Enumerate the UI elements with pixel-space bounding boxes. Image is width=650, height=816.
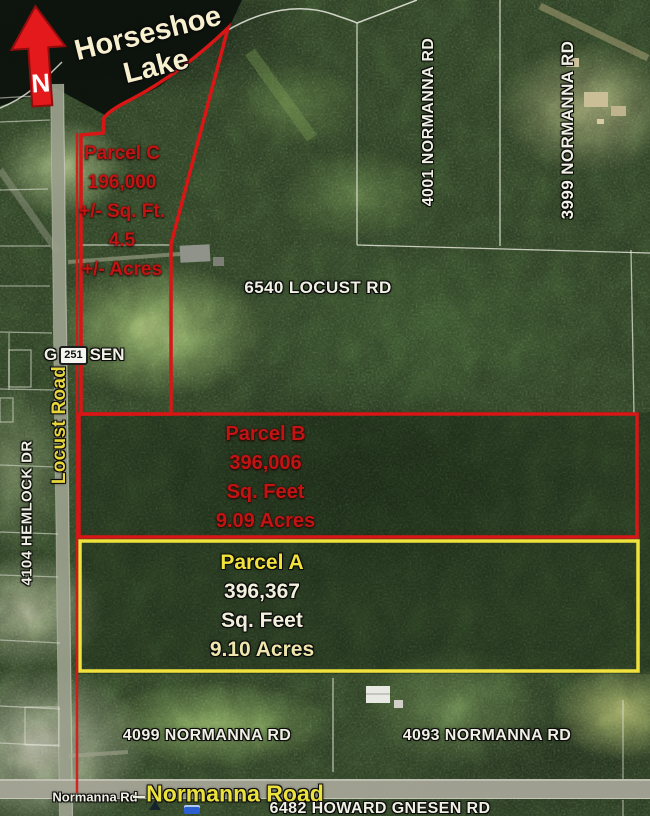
- addr-4099-normanna: 4099 NORMANNA RD: [123, 727, 292, 745]
- parcel-c-title: Parcel C: [58, 139, 186, 168]
- aerial-parcel-map: N Horseshoe Lake Parcel C 196,000 +/- Sq…: [0, 0, 650, 816]
- parcel-a-area: 396,367: [152, 577, 372, 606]
- parcel-b-area-unit: Sq. Feet: [158, 478, 373, 507]
- lake-label: Horseshoe Lake: [47, 0, 258, 107]
- parcel-b-title: Parcel B: [158, 420, 373, 449]
- parcel-a-title: Parcel A: [152, 548, 372, 577]
- labels-layer: N Horseshoe Lake Parcel C 196,000 +/- Sq…: [0, 0, 650, 816]
- parcel-a-area-unit: Sq. Feet: [152, 606, 372, 635]
- parcel-a-acres: 9.10 Acres: [152, 635, 372, 664]
- parcel-c-area-unit: +/- Sq. Ft.: [58, 197, 186, 226]
- parcel-c-area: 196,000: [58, 168, 186, 197]
- addr-3999-normanna: 3999 NORMANNA RD: [558, 41, 578, 220]
- addr-4093-normanna: 4093 NORMANNA RD: [403, 727, 572, 745]
- addr-6540-locust: 6540 LOCUST RD: [244, 278, 391, 298]
- parcel-b-acres: 9.09 Acres: [158, 507, 373, 536]
- north-label: N: [30, 67, 51, 98]
- parcel-c-acres: 4.5: [58, 226, 186, 255]
- parcel-b-area: 396,006: [158, 449, 373, 478]
- gnesen-prefix: G: [44, 345, 57, 365]
- route-251-badge: 251: [59, 346, 87, 365]
- addr-4104-hemlock: 4104 HEMLOCK DR: [19, 440, 36, 585]
- parcel-c-acres-unit: +/- Acres: [58, 255, 186, 284]
- parcel-b-label: Parcel B 396,006 Sq. Feet 9.09 Acres: [158, 420, 373, 536]
- addr-6482-howard-gnesen: 6482 HOWARD GNESEN RD: [270, 800, 491, 816]
- parcel-a-label: Parcel A 396,367 Sq. Feet 9.10 Acres: [152, 548, 372, 664]
- locust-road-label: Locust Road: [49, 366, 71, 484]
- parcel-c-label: Parcel C 196,000 +/- Sq. Ft. 4.5 +/- Acr…: [58, 139, 186, 284]
- addr-4001-normanna: 4001 NORMANNA RD: [420, 38, 438, 207]
- leader-dash: [133, 796, 145, 798]
- gnesen-suffix: SEN: [90, 345, 125, 365]
- gnesen-township-label: G 251 SEN: [44, 345, 125, 365]
- normanna-rd-small-label: Normanna Rd: [52, 790, 137, 805]
